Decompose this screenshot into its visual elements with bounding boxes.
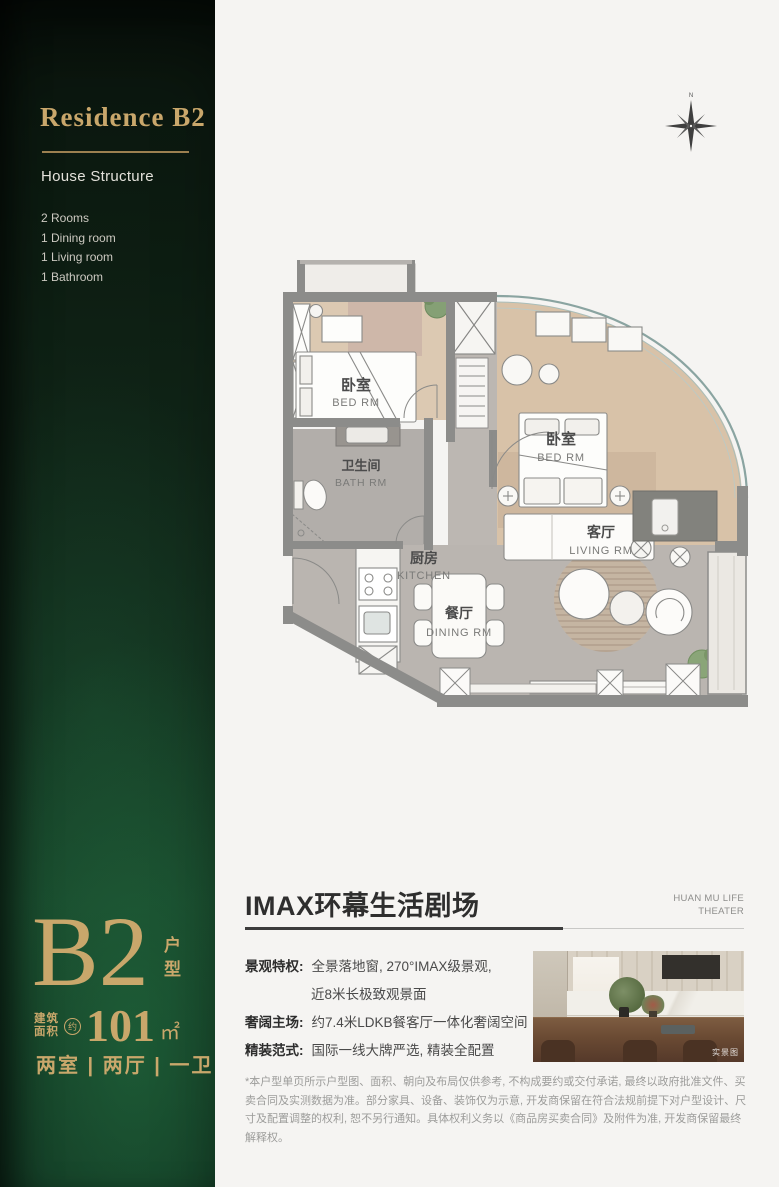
feature-list: 景观特权: 全景落地窗, 270°IMAX级景观, 近8米长极致观景面 奢阔主场… — [245, 951, 545, 1063]
kitchen-label-cn: 厨房 — [410, 550, 438, 566]
bedroom1-label-en: BED RM — [332, 397, 380, 409]
area-value: 101 — [86, 1003, 155, 1049]
feature-row: 精装范式: 国际一线大牌严选, 精装全配置 — [245, 1035, 545, 1063]
shaft-box — [453, 296, 495, 354]
layout-spec: 两室 | 两厅 | 一卫 — [36, 1049, 213, 1078]
divider-dark-segment — [245, 927, 563, 930]
house-structure-heading: House Structure — [41, 168, 154, 185]
room-list-item: 1 Bathroom — [41, 268, 116, 288]
unit-code: B2 — [32, 902, 149, 1002]
photo-range-hood — [662, 955, 720, 979]
bay-window — [708, 552, 746, 694]
feature-text: 近8米长极致观景面 — [311, 983, 427, 1003]
gold-divider — [42, 151, 189, 153]
feature-row: 景观特权: 全景落地窗, 270°IMAX级景观, — [245, 951, 545, 979]
area-row: 建筑 面积 约 101 ㎡ — [34, 1003, 180, 1049]
approx-badge: 约 — [64, 1018, 81, 1035]
feature-text: 国际一线大牌严选, 精装全配置 — [312, 1039, 495, 1059]
bathroom-label-cn: 卫生间 — [341, 458, 380, 473]
compass-icon: N — [662, 88, 720, 156]
living-label-cn: 客厅 — [586, 524, 615, 540]
photo-tray — [661, 1025, 695, 1034]
hall-wardrobe — [456, 358, 488, 428]
feature-row-continuation: 近8米长极致观景面 — [245, 979, 545, 1007]
floor-plan-poster: Residence B2 House Structure 2 Rooms 1 D… — [0, 0, 779, 1187]
dining-label-en: DINING RM — [426, 627, 492, 639]
room-list-item: 1 Living room — [41, 248, 116, 268]
feature-label: 精装范式: — [245, 1039, 304, 1059]
unit-type-label: 户型 — [158, 936, 183, 984]
interior-photo: 实景图 — [533, 951, 744, 1062]
feature-label: 奢阔主场: — [245, 1011, 304, 1031]
bedroom2-label-cn: 卧室 — [546, 430, 576, 448]
feature-row: 奢阔主场: 约7.4米LDKB餐客厅一体化奢阔空间 — [245, 1007, 545, 1035]
compass-north-label: N — [689, 93, 693, 99]
brand-line1: HUAN MU LIFE — [614, 892, 744, 905]
disclaimer-text: *本户型单页所示户型图、面积、朝向及布局仅供参考, 不构成要约或交付承诺, 最终… — [245, 1073, 748, 1148]
brand-line2: THEATER — [614, 905, 744, 918]
bathroom-label-en: BATH RM — [335, 477, 387, 489]
feature-text: 全景落地窗, 270°IMAX级景观, — [312, 955, 492, 975]
area-unit: ㎡ — [160, 1016, 180, 1045]
living-label-en: LIVING RM — [569, 545, 632, 557]
section-headline: IMAX环幕生活剧场 — [245, 884, 480, 923]
sidebar-panel: Residence B2 House Structure 2 Rooms 1 D… — [0, 0, 215, 1187]
kitchen-label-en: KITCHEN — [397, 570, 451, 582]
room-list-item: 1 Dining room — [41, 229, 116, 249]
photo-chair — [623, 1040, 657, 1062]
photo-watermark: 实景图 — [712, 1047, 739, 1058]
feature-label: 景观特权: — [245, 955, 304, 975]
area-prefix-line1: 建筑 — [34, 1013, 59, 1026]
dining-label-cn: 餐厅 — [444, 605, 473, 621]
room-list-item: 2 Rooms — [41, 209, 116, 229]
water-heater — [652, 499, 678, 535]
divider-light-segment — [563, 928, 744, 929]
balcony-floor — [303, 264, 415, 295]
area-prefix-line2: 面积 — [34, 1026, 59, 1039]
photo-chair — [541, 1040, 575, 1062]
brand-caption: HUAN MU LIFE THEATER — [614, 892, 744, 918]
room-list: 2 Rooms 1 Dining room 1 Living room 1 Ba… — [41, 209, 116, 287]
area-prefix: 建筑 面积 — [34, 1013, 59, 1039]
bedroom1-label-cn: 卧室 — [341, 376, 371, 394]
bedroom2-label-en: BED RM — [537, 452, 585, 464]
headline-divider — [245, 927, 744, 930]
feature-text: 约7.4米LDKB餐客厅一体化奢阔空间 — [312, 1011, 528, 1031]
residence-title: Residence B2 — [40, 102, 206, 133]
floor-plan-drawing: 卧室 BED RM 卫生间 BATH RM 厨房 KITCHEN 餐厅 DINI… — [275, 255, 755, 725]
